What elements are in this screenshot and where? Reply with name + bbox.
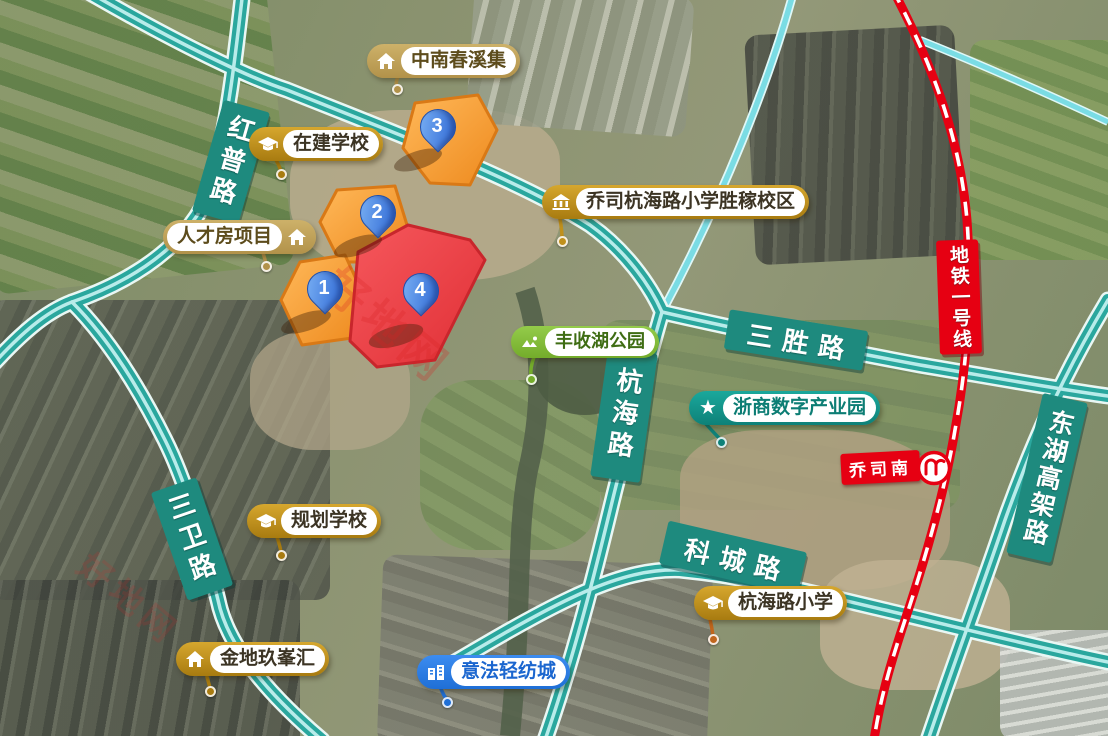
leader-lines bbox=[0, 0, 1108, 736]
poi-qiaosi-hanghailu-primary-campus[interactable]: 乔司杭海路小学胜稼校区 bbox=[542, 185, 809, 219]
park-icon bbox=[515, 334, 545, 350]
poi-anchor-dot bbox=[276, 169, 287, 180]
poi-zhongnan-chunxiji[interactable]: 中南春溪集 bbox=[367, 44, 520, 78]
poi-label: 金地玖峯汇 bbox=[210, 645, 325, 673]
station-label-qiaosinan[interactable]: 乔司南 bbox=[840, 450, 921, 485]
pin-number: 2 bbox=[360, 195, 394, 229]
house-icon bbox=[282, 228, 312, 246]
metro-logo-icon[interactable] bbox=[916, 450, 952, 486]
house-icon bbox=[371, 52, 401, 70]
plot-pin-3[interactable]: 3 bbox=[417, 109, 457, 163]
graduation-cap-icon bbox=[698, 594, 728, 612]
school-icon bbox=[546, 193, 576, 211]
graduation-cap-icon bbox=[253, 135, 283, 153]
poi-zaijian-xuexiao[interactable]: 在建学校 bbox=[249, 127, 383, 161]
poi-anchor-dot bbox=[276, 550, 287, 561]
pin-number: 3 bbox=[420, 109, 454, 143]
poi-label: 中南春溪集 bbox=[401, 47, 516, 75]
poi-rencaifang-xiangmu[interactable]: 人才房项目 bbox=[163, 220, 316, 254]
poi-jindi-jiufenghui[interactable]: 金地玖峯汇 bbox=[176, 642, 329, 676]
poi-anchor-dot bbox=[442, 697, 453, 708]
poi-label: 浙商数字产业园 bbox=[723, 394, 876, 422]
pin-number: 4 bbox=[403, 273, 437, 307]
star-icon: ★ bbox=[693, 398, 723, 418]
poi-hanghailu-primary[interactable]: 杭海路小学 bbox=[694, 586, 847, 620]
poi-label: 丰收湖公园 bbox=[545, 328, 655, 356]
poi-label: 规划学校 bbox=[281, 507, 377, 535]
plot-pin-1[interactable]: 1 bbox=[304, 271, 344, 325]
house-icon bbox=[180, 650, 210, 668]
poi-yifa-textile-city[interactable]: 意法轻纺城 bbox=[417, 655, 570, 689]
poi-fengshouhu-park[interactable]: 丰收湖公园 bbox=[511, 326, 659, 358]
pin-number: 1 bbox=[307, 271, 341, 305]
poi-label: 意法轻纺城 bbox=[451, 658, 566, 686]
poi-anchor-dot bbox=[716, 437, 727, 448]
poi-label: 杭海路小学 bbox=[728, 589, 843, 617]
poi-anchor-dot bbox=[708, 634, 719, 645]
poi-label: 人才房项目 bbox=[167, 223, 282, 251]
poi-label: 在建学校 bbox=[283, 130, 379, 158]
poi-zheshang-digital-park[interactable]: ★ 浙商数字产业园 bbox=[689, 391, 880, 425]
poi-label: 乔司杭海路小学胜稼校区 bbox=[576, 188, 805, 216]
graduation-cap-icon bbox=[251, 512, 281, 530]
poi-guihua-xuexiao[interactable]: 规划学校 bbox=[247, 504, 381, 538]
poi-anchor-dot bbox=[261, 261, 272, 272]
satellite-map: 好地网 好地网 红普路 三胜路 杭海路 科城路 三卫路 东湖高架路 地铁一号线 … bbox=[0, 0, 1108, 736]
poi-anchor-dot bbox=[557, 236, 568, 247]
building-icon bbox=[421, 663, 451, 681]
poi-anchor-dot bbox=[205, 686, 216, 697]
plot-pin-4[interactable]: 4 bbox=[400, 273, 440, 327]
plot-pin-2[interactable]: 2 bbox=[357, 195, 397, 249]
poi-anchor-dot bbox=[392, 84, 403, 95]
poi-anchor-dot bbox=[526, 374, 537, 385]
